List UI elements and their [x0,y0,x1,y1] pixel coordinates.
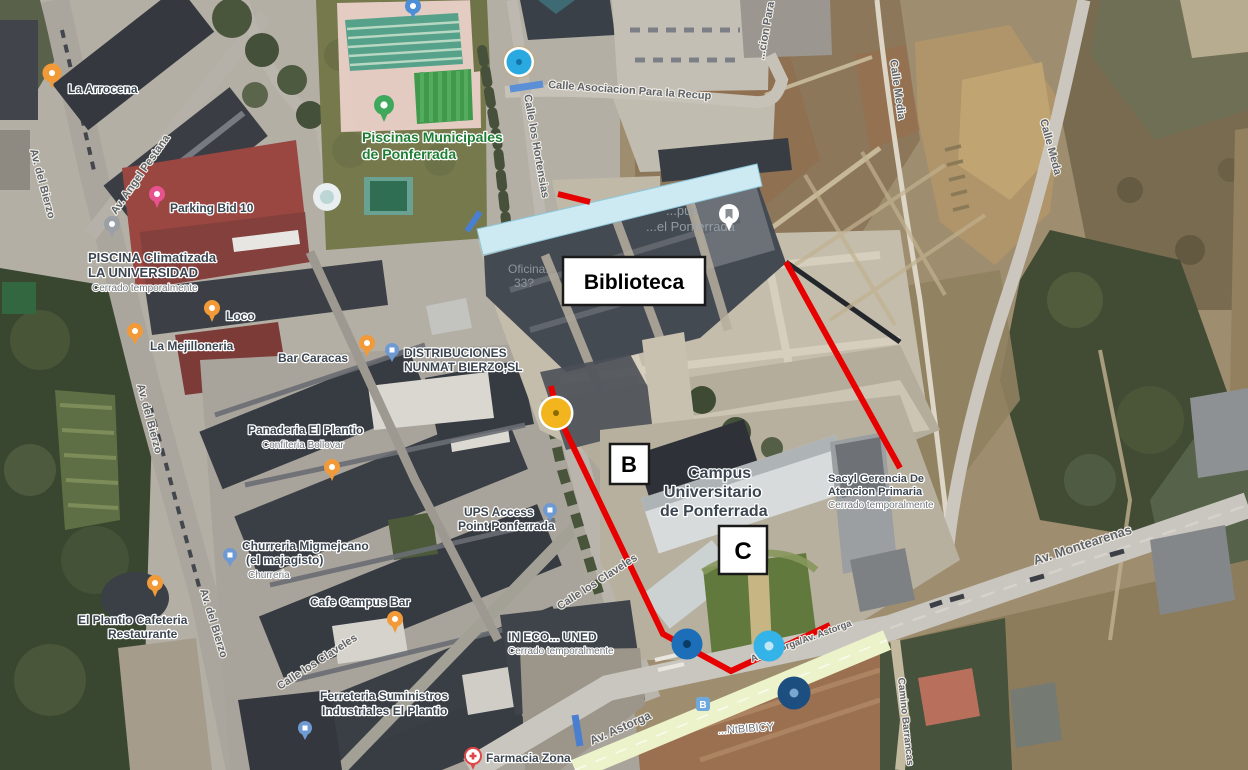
svg-text:B: B [621,452,637,477]
svg-text:Atencion Primaria: Atencion Primaria [828,486,923,498]
svg-text:PISCINA Climatizada: PISCINA Climatizada [88,250,217,265]
svg-text:Loco: Loco [226,309,255,323]
svg-text:Bar Caracas: Bar Caracas [278,351,348,365]
svg-text:Churreria: Churreria [248,570,290,581]
svg-text:El Plantio Cafeteria: El Plantio Cafeteria [78,613,188,627]
svg-text:de Ponferrada: de Ponferrada [660,503,768,520]
svg-text:Ferreteria Suministros: Ferreteria Suministros [320,689,448,703]
svg-text:IN ECO... UNED: IN ECO... UNED [508,630,597,644]
svg-text:Cafe Campus Bar: Cafe Campus Bar [310,595,410,609]
svg-text:Panaderia El Plantio: Panaderia El Plantio [248,423,363,437]
svg-text:Farmacia Zona: Farmacia Zona [486,751,571,765]
svg-text:Cerrado temporalmente: Cerrado temporalmente [828,500,934,511]
svg-text:LA UNIVERSIDAD: LA UNIVERSIDAD [88,265,198,280]
svg-text:DISTRIBUCIONES: DISTRIBUCIONES [404,346,507,360]
svg-text:(el majagisto): (el majagisto) [246,553,323,567]
svg-text:Churreria Migmejcano: Churreria Migmejcano [242,539,369,553]
svg-text:B: B [699,700,706,711]
svg-text:La Mejilloneria: La Mejilloneria [150,339,234,353]
svg-text:La Arrocena: La Arrocena [68,82,138,96]
svg-text:Biblioteca: Biblioteca [584,271,685,294]
svg-text:de Ponferrada: de Ponferrada [362,146,456,162]
svg-text:Oficina...: Oficina... [508,262,555,276]
svg-text:Parking Bid 10: Parking Bid 10 [170,201,254,215]
svg-text:Universitario: Universitario [664,484,762,501]
svg-text:...pus: ...pus [666,203,698,218]
svg-text:33?: 33? [514,276,534,290]
svg-text:C: C [734,538,751,565]
svg-text:NUNMAT BIERZO,SL: NUNMAT BIERZO,SL [404,360,522,374]
svg-text:UPS Access: UPS Access [464,505,534,519]
svg-text:Confiteria Bollovar: Confiteria Bollovar [262,440,344,451]
svg-text:Cerrado temporalmente: Cerrado temporalmente [92,283,198,294]
svg-text:Piscinas Municipales: Piscinas Municipales [362,129,503,145]
svg-text:Campus: Campus [688,465,751,482]
svg-text:Point Ponferrada: Point Ponferrada [458,519,555,533]
svg-text:Sacyl Gerencia De: Sacyl Gerencia De [828,473,924,485]
svg-text:Restaurante: Restaurante [108,627,178,641]
svg-text:Cerrado temporalmente: Cerrado temporalmente [508,646,614,657]
svg-text:Industriales El Plantio: Industriales El Plantio [322,704,447,718]
